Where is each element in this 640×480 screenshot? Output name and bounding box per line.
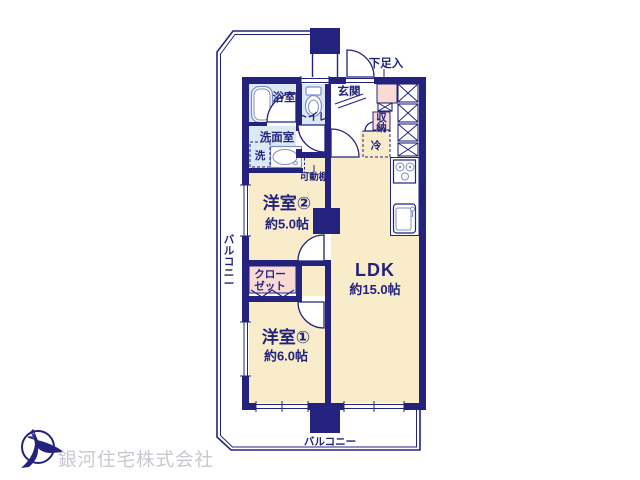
floor-plan-svg: 下足入 玄関 浴室 トイレ 洗面室 洗 収納 冷 可動棚 洋室② 約5.0帖 L… — [0, 0, 640, 480]
label-shoe-box: 下足入 — [369, 57, 404, 70]
pillar-bottom — [310, 403, 340, 433]
wall — [296, 260, 302, 302]
room-label-ldk: LDK — [355, 260, 395, 280]
wall-top — [242, 77, 301, 84]
wall — [296, 84, 302, 131]
room-label-western2: 洋室② — [263, 193, 311, 213]
label-storage: 収納 — [376, 112, 387, 134]
wall-top — [374, 77, 426, 84]
wall-bottom — [242, 403, 256, 410]
room-label-western1: 洋室① — [262, 327, 310, 347]
label-washer: 洗 — [255, 149, 266, 162]
wall — [325, 261, 331, 403]
wall — [296, 152, 331, 158]
wall-bottom — [404, 403, 426, 410]
room-size-ldk: 約15.0帖 — [349, 282, 400, 297]
room-fill-ldk — [331, 157, 390, 403]
wall-top — [329, 77, 346, 84]
wall-left — [242, 77, 249, 185]
wall-left — [242, 236, 249, 322]
label-closet-line1: クロー — [254, 269, 286, 281]
label-toilet: トイレ — [297, 111, 329, 123]
pillar-center — [313, 208, 340, 234]
window-toilet — [301, 76, 329, 85]
pillar-top — [310, 28, 340, 54]
label-closet-line2: ゼット — [254, 280, 286, 293]
room-size-western1: 約6.0帖 — [264, 349, 308, 364]
wall — [325, 158, 331, 208]
stove-icon — [394, 160, 416, 183]
kitchen-sink-icon — [394, 204, 416, 233]
room-fill-closet-entry — [302, 266, 325, 296]
wall-right — [419, 77, 426, 410]
label-washroom: 洗面室 — [260, 130, 295, 144]
shoe-box — [377, 84, 397, 103]
label-balcony-bottom: バルコニー — [304, 436, 356, 448]
company-name: 銀河住宅株式会社 — [58, 450, 214, 471]
wall — [242, 168, 303, 173]
label-balcony-left: バルコニー — [224, 234, 235, 290]
label-bath: 浴室 — [273, 90, 296, 104]
floorplan-page: 下足入 玄関 浴室 トイレ 洗面室 洗 収納 冷 可動棚 洋室② 約5.0帖 L… — [0, 0, 640, 480]
wall — [242, 296, 302, 302]
room-size-western2: 約5.0帖 — [265, 217, 309, 232]
label-genkan: 玄関 — [338, 84, 361, 98]
label-movable-shelf: 可動棚 — [300, 171, 329, 183]
label-fridge: 冷 — [371, 139, 382, 152]
